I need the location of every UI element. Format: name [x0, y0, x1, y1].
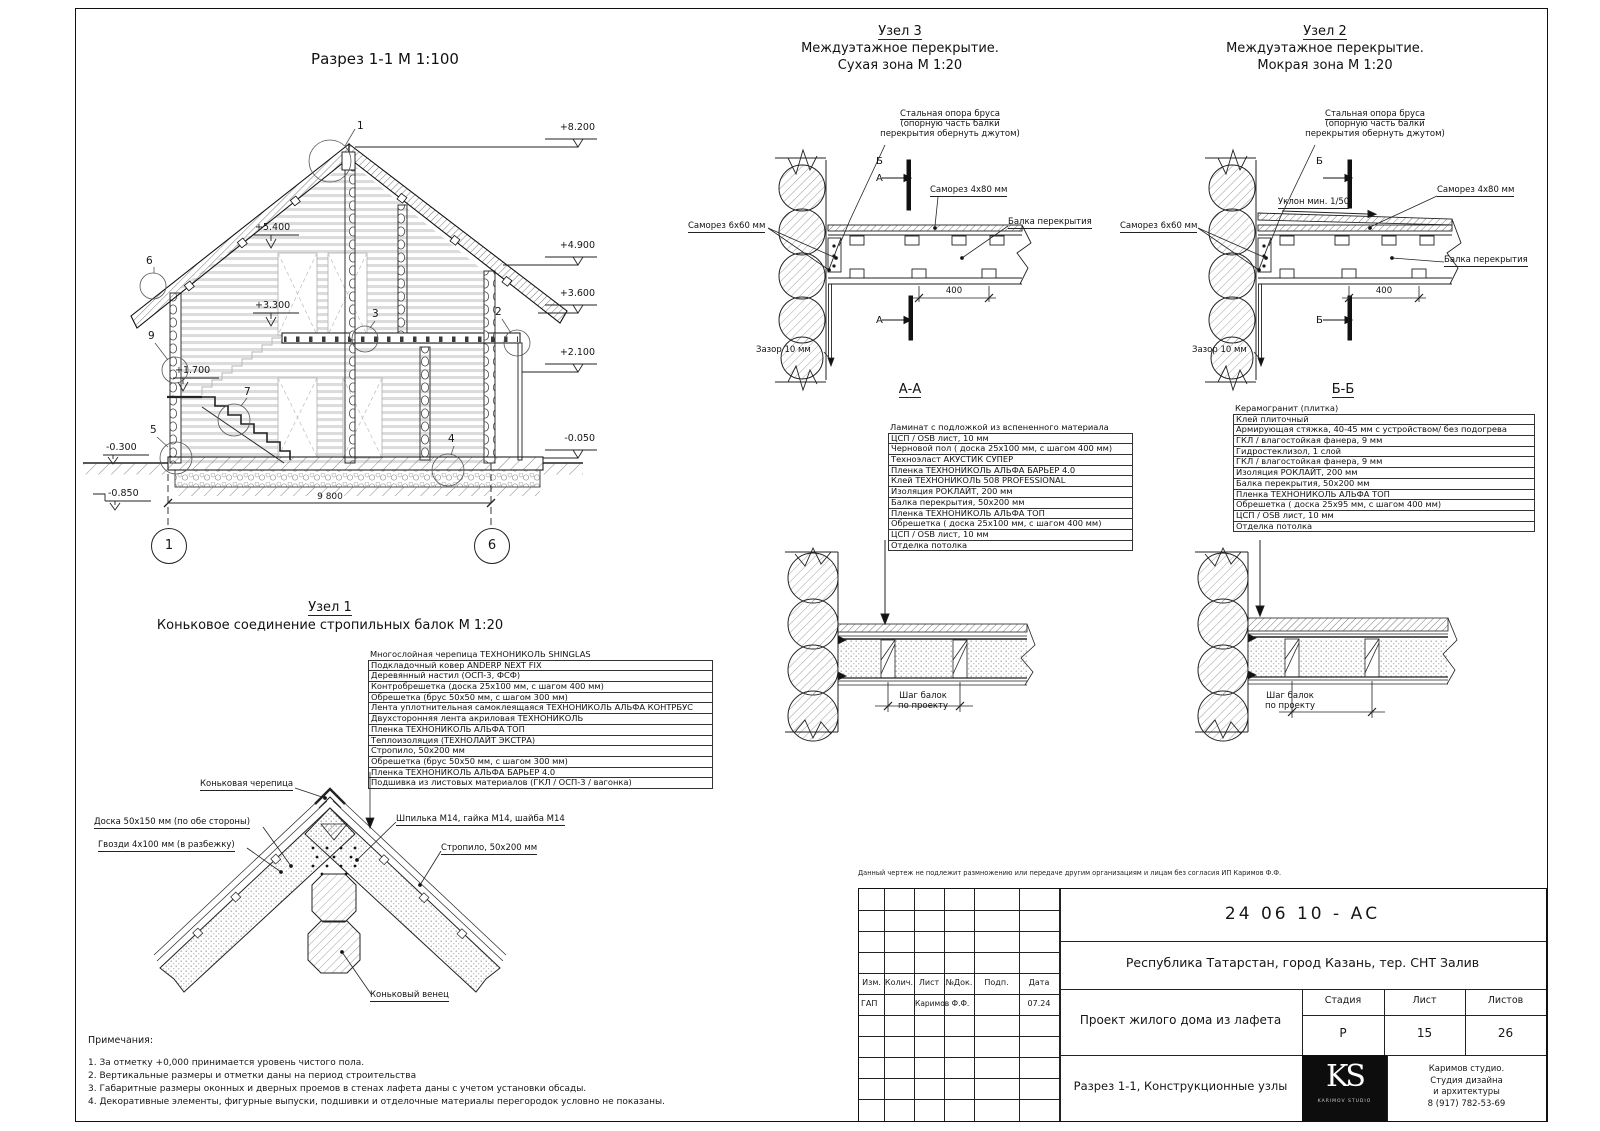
tb-line — [1059, 941, 1546, 942]
aa-list-arrow — [881, 540, 889, 624]
bb-section-text: Б-Б — [1332, 382, 1355, 398]
node3-section-marks — [882, 160, 913, 340]
node3-title: Узел 3 — [780, 24, 1020, 39]
tb-grid-line — [859, 931, 1059, 932]
node1-drawing — [85, 770, 605, 1020]
aa-floor — [838, 624, 1035, 685]
elev-8200: +8.200 — [525, 122, 595, 133]
bb-section-title: Б-Б — [1318, 382, 1368, 397]
elev-2100: +2.100 — [525, 347, 595, 358]
node1-subtitle: Коньковое соединение стропильных балок М… — [140, 618, 520, 633]
aa-section-title: А-А — [885, 382, 935, 397]
tb-listov-label: Листов — [1465, 995, 1546, 1006]
elev-m0300: -0.300 — [106, 442, 176, 453]
node2-marker-b: Б — [1316, 156, 1323, 168]
node3-support-label: Стальная опора бруса(опорную часть балки… — [880, 110, 1020, 139]
notes-block: Примечания: 1. За отметку +0,000 принима… — [88, 1034, 665, 1109]
callout-1: 1 — [357, 120, 364, 132]
note-item: 2. Вертикальные размеры и отметки даны н… — [88, 1070, 665, 1083]
node1-stud-label: Шпилька М14, гайка М14, шайба М14 — [396, 815, 565, 826]
node3-screw660-label: Саморез 6х60 мм — [688, 222, 765, 233]
studio-logo: KS KARIMOV STUDIO — [1302, 1055, 1387, 1121]
studio-line3: и архитектуры — [1433, 1087, 1500, 1097]
tb-grid-line — [859, 1015, 1059, 1016]
elev-4900: +4.900 — [525, 240, 595, 251]
node2-title: Узел 2 — [1205, 24, 1445, 39]
node1-nails-label: Гвозди 4х100 мм (в разбежку) — [98, 841, 235, 852]
note-item: 1. За отметку +0,000 принимается уровень… — [88, 1057, 665, 1070]
tb-col-ndok: №Док. — [944, 978, 974, 987]
axis-bubble-1: 1 — [151, 528, 187, 564]
drawing-sheet: Разрез 1-1 М 1:100 — [0, 0, 1600, 1131]
node2-support2: (опорную часть балки — [1325, 119, 1424, 129]
bb-layer: ЦСП / OSB лист, 10 мм — [1233, 511, 1535, 522]
logo-subtext: KARIMOV STUDIO — [1302, 1099, 1387, 1104]
aa-beam-step-label: Шаг балокпо проекту — [868, 692, 978, 712]
node1-title-text: Узел 1 — [308, 600, 352, 616]
callout-7: 7 — [244, 386, 251, 398]
node2-slope-label: Уклон мин. 1/50 — [1278, 198, 1349, 209]
node2-support3: перекрытия обернуть джутом) — [1305, 129, 1445, 139]
tb-stage-value: Р — [1302, 1026, 1384, 1040]
tb-col-data: Дата — [1019, 978, 1059, 987]
bb-layer: Балка перекрытия, 50х200 мм — [1233, 479, 1535, 490]
bb-step1: Шаг балок — [1266, 691, 1314, 701]
node3-floor — [828, 225, 1031, 362]
bb-step2: по проекту — [1265, 701, 1315, 711]
tb-grid-line — [859, 1099, 1059, 1100]
notes-title: Примечания: — [88, 1034, 665, 1047]
bb-floor — [1248, 618, 1457, 684]
node1-board-label: Доска 50х150 мм (по обе стороны) — [94, 818, 250, 829]
node1-layer-list: Многослойная черепица ТЕХНОНИКОЛЬ SHINGL… — [368, 650, 713, 789]
tb-row-name: Каримов Ф.Ф. — [915, 999, 1019, 1008]
node3-beam-label: Балка перекрытия — [1008, 218, 1092, 229]
aa-layer: ЦСП / OSB лист, 10 мм — [888, 530, 1133, 541]
bb-list-arrow — [1256, 540, 1264, 616]
aa-section-text: А-А — [899, 382, 921, 398]
elev-1700: +1.700 — [175, 365, 245, 376]
node2-sub2: Мокрая зона М 1:20 — [1205, 58, 1445, 73]
tb-col-podp: Подп. — [974, 978, 1019, 987]
tb-doc-number: 24 06 10 - АС — [1059, 904, 1546, 924]
callout-4: 4 — [448, 433, 455, 445]
tb-drawing-title: Разрез 1-1, Конструкционные узлы — [1059, 1079, 1302, 1093]
node3-sub1: Междуэтажное перекрытие. — [780, 41, 1020, 56]
node3-screw480-label: Саморез 4х80 мм — [930, 186, 1007, 197]
node2-section-marks — [1323, 160, 1352, 340]
copyright-note: Данный чертеж не подлежит размножению ил… — [858, 869, 1281, 877]
tb-col-kolich: Колич. — [884, 978, 914, 987]
tb-list-label: Лист — [1384, 995, 1465, 1006]
studio-phone: 8 (917) 782-53-69 — [1428, 1099, 1506, 1109]
elev-3300: +3.300 — [255, 300, 325, 311]
tb-listov-value: 26 — [1465, 1026, 1546, 1040]
node3-dim400-label: 400 — [934, 287, 974, 297]
bb-wall — [1195, 548, 1248, 741]
studio-line2: Студия дизайна — [1430, 1076, 1503, 1086]
note-item: 3. Габаритные размеры оконных и дверных … — [88, 1083, 665, 1096]
title-block: Изм. Колич. Лист №Док. Подп. Дата ГАП Ка… — [858, 888, 1547, 1122]
node2-sub1: Междуэтажное перекрытие. — [1205, 41, 1445, 56]
node3-gap-label: Зазор 10 мм — [756, 346, 811, 356]
callout-5: 5 — [150, 424, 157, 436]
studio-line1: Каримов студио. — [1429, 1064, 1504, 1074]
node3-marker-a2: А — [876, 315, 883, 327]
tb-row-date: 07.24 — [1019, 999, 1059, 1008]
node2-drawing — [1120, 100, 1545, 400]
razrez-drawing — [83, 95, 603, 575]
node2-screw480-label: Саморез 4х80 мм — [1437, 186, 1514, 197]
node2-gap-label: Зазор 10 мм — [1192, 346, 1247, 356]
tb-grid-line — [859, 973, 1059, 974]
node2-floor — [1258, 213, 1461, 362]
tb-line — [1302, 1015, 1546, 1016]
elev-3600: +3.600 — [525, 288, 595, 299]
node3-marker-a: А — [876, 173, 883, 185]
tb-grid-line — [859, 1036, 1059, 1037]
elev-m0050: -0.050 — [525, 433, 595, 444]
callout-3: 3 — [372, 308, 379, 320]
tb-grid-line — [859, 1057, 1059, 1058]
node2-marker-b2: Б — [1316, 315, 1323, 327]
tb-col-izm: Изм. — [859, 978, 884, 987]
tb-row-role: ГАП — [861, 999, 877, 1008]
callout-2: 2 — [495, 306, 502, 318]
tb-grid-line — [859, 910, 1059, 911]
callout-6: 6 — [146, 255, 153, 267]
studio-contacts: Каримов студио. Студия дизайна и архитек… — [1387, 1064, 1546, 1110]
logo-ks-text: KS — [1302, 1055, 1387, 1099]
bb-layer: Отделка потолка — [1233, 522, 1535, 533]
node1-ridge-tile-label: Коньковая черепица — [200, 780, 293, 791]
aa-step2: по проекту — [898, 701, 948, 711]
node3-sub2: Сухая зона М 1:20 — [780, 58, 1020, 73]
tb-grid-line — [859, 994, 1059, 995]
tb-grid-line — [859, 952, 1059, 953]
tb-grid-line — [859, 1078, 1059, 1079]
node2-title-text: Узел 2 — [1303, 24, 1347, 40]
bb-beam-step-label: Шаг балокпо проекту — [1240, 692, 1340, 712]
node1-ridge-log-label: Коньковый венец — [370, 991, 449, 1002]
node3-marker-b: Б — [876, 156, 883, 168]
node3-support2: (опорную часть балки — [900, 119, 999, 129]
node1-rafter-label: Стропило, 50х200 мм — [441, 844, 537, 855]
node3-title-text: Узел 3 — [878, 24, 922, 40]
tb-stage-label: Стадия — [1302, 995, 1384, 1006]
node3-support3: перекрытия обернуть джутом) — [880, 129, 1020, 139]
node2-beam-label: Балка перекрытия — [1444, 256, 1528, 267]
elev-5400: +5.400 — [255, 222, 325, 233]
tb-location: Республика Татарстан, город Казань, тер.… — [1059, 955, 1546, 970]
aa-layer-list: Ламинат с подложкой из вспененного матер… — [888, 423, 1133, 551]
elev-m0850: -0.850 — [108, 488, 178, 499]
dim-9800: 9 800 — [300, 492, 360, 502]
aa-wall — [785, 548, 838, 741]
node2-dim400-label: 400 — [1364, 287, 1404, 297]
note-item: 4. Декоративные элементы, фигурные выпус… — [88, 1096, 665, 1109]
node2-screw660-label: Саморез 6х60 мм — [1120, 222, 1197, 233]
tb-list-value: 15 — [1384, 1026, 1465, 1040]
bb-detail-drawing — [1165, 540, 1470, 745]
tb-project-name: Проект жилого дома из лафета — [1059, 1013, 1302, 1027]
node1-layer: Пленка ТЕХНОНИКОЛЬ АЛЬФА ТОП — [368, 725, 713, 736]
razrez-title: Разрез 1-1 М 1:100 — [280, 50, 490, 68]
aa-step1: Шаг балок — [899, 691, 947, 701]
aa-layer: Балка перекрытия, 50х200 мм — [888, 498, 1133, 509]
ridge-logs — [308, 874, 360, 973]
callout-9: 9 — [148, 330, 155, 342]
node2-support-label: Стальная опора бруса(опорную часть балки… — [1305, 110, 1445, 139]
tb-col-list: Лист — [914, 978, 944, 987]
node1-title: Узел 1 — [270, 600, 390, 615]
node3-drawing — [690, 100, 1115, 400]
node1-layer: Обрешетка (брус 50х50 мм, с шагом 300 мм… — [368, 757, 713, 768]
bb-layer-list: Керамогранит (плитка) Клей плиточный Арм… — [1233, 404, 1535, 532]
axis-bubble-6: 6 — [474, 528, 510, 564]
aa-detail-drawing — [755, 540, 1045, 745]
tb-grid-line — [884, 889, 885, 1121]
